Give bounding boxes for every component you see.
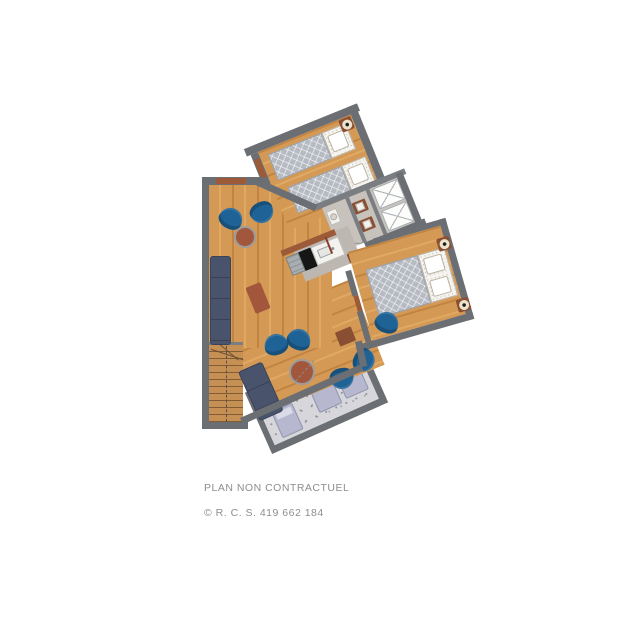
- lamp-bulb: [438, 238, 450, 250]
- caption-registration: © R. C. S. 419 662 184: [204, 507, 324, 519]
- stair-guide-line: [226, 346, 227, 422]
- floor-plan-page: PLAN NON CONTRACTUEL © R. C. S. 419 662 …: [0, 0, 640, 640]
- lamp-bulb: [457, 299, 469, 311]
- living-room-left-wall: [202, 177, 209, 352]
- floor-plan: PLAN NON CONTRACTUEL © R. C. S. 419 662 …: [0, 0, 640, 640]
- window: [216, 178, 246, 184]
- coffee-table-round: [234, 226, 256, 248]
- stair-bottom-wall: [202, 422, 248, 429]
- caption-disclaimer: PLAN NON CONTRACTUEL: [204, 482, 349, 494]
- stair-left-wall: [202, 346, 209, 428]
- lamp-bulb: [340, 118, 353, 131]
- sofa: [210, 256, 231, 345]
